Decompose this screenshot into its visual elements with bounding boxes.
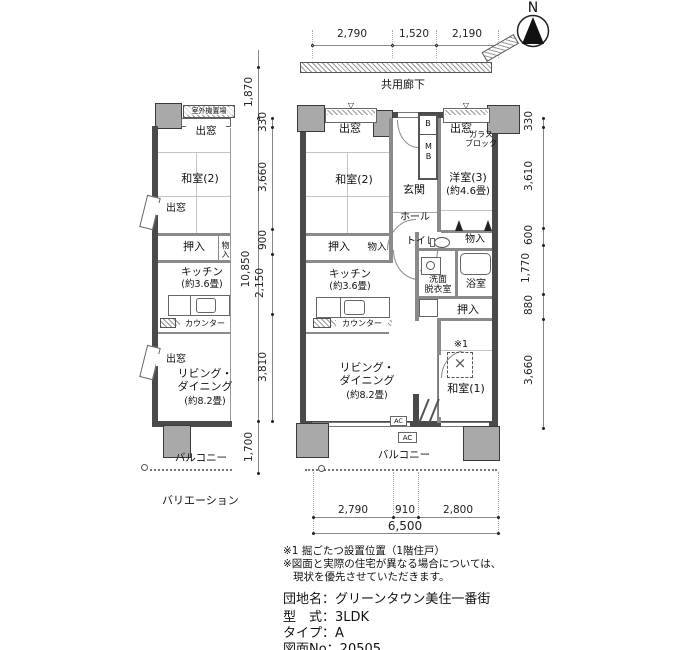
triangle-marker-icon: ▽	[345, 101, 357, 110]
dim-line-left-outer	[258, 421, 259, 474]
bathtub	[460, 253, 491, 275]
room-washroom: 洗面脱衣室	[420, 275, 456, 296]
corridor-band	[300, 62, 492, 73]
dim-tick	[257, 66, 260, 69]
dim-tick	[497, 516, 500, 519]
ac-unit-box: AC	[390, 416, 407, 426]
dim-tick	[542, 427, 545, 430]
room-bath: 浴室	[461, 279, 491, 291]
glass-block-line2: ブロック	[465, 139, 497, 148]
dim-tick	[312, 532, 315, 535]
entrance-opening	[398, 112, 418, 118]
dim-bottom-1: 2,790	[333, 504, 373, 516]
room-yoshitsu3-size: (約4.6畳)	[440, 186, 496, 198]
compass-icon	[515, 13, 551, 49]
balcony-label: バルコニー	[172, 452, 230, 464]
dim-tick	[271, 420, 274, 423]
dim-left-seg-1: 330	[257, 102, 269, 142]
outdoor-unit-label: 室外機置場	[184, 107, 234, 115]
washing-machine-box	[419, 299, 438, 317]
dim-left-seg-3: 900	[257, 220, 269, 260]
bay-window-hatch	[445, 110, 488, 115]
dim-top-3: 2,190	[447, 28, 487, 40]
dim-right-seg-6: 3,660	[523, 350, 535, 390]
variation-caption: バリエーション	[162, 495, 234, 508]
dim-left-lower: 1,700	[243, 427, 255, 467]
bottom-dim-line-2	[313, 533, 498, 534]
dim-tick	[271, 313, 274, 316]
dim-tick	[542, 293, 545, 296]
dim-right-seg-4: 1,770	[520, 248, 532, 288]
dim-line-right	[543, 118, 544, 429]
triangle-marker-icon: ▽	[460, 101, 472, 110]
dim-tick	[257, 420, 260, 423]
door-fold-marker-icon	[455, 220, 463, 231]
balcony-railing	[305, 466, 497, 471]
room-living: リビング・ダイニング	[174, 368, 236, 393]
tatami-line	[158, 152, 230, 153]
room-washitsu1: 和室(1)	[438, 383, 494, 396]
room-washitsu2: 和室(2)	[330, 174, 378, 187]
closet-left: 押入	[317, 241, 361, 254]
dim-right-seg-1: 330	[523, 101, 535, 141]
tatami-line	[158, 196, 230, 197]
info-drawing-no: 図面No：20505	[283, 638, 381, 650]
storage-label: 物入	[220, 238, 230, 262]
dim-tick	[271, 117, 274, 120]
kitchen-sink	[196, 298, 216, 313]
tatami-line	[196, 152, 197, 233]
storage-top-right: 物入	[458, 234, 492, 246]
living-line2: ダイニング	[340, 374, 395, 387]
closet-right: 押入	[446, 304, 490, 317]
washbasin-bowl	[426, 261, 435, 270]
dim-tick	[542, 318, 545, 321]
dim-top-1: 2,790	[332, 28, 372, 40]
pier	[463, 426, 500, 461]
kitchen-counter-divider	[190, 295, 191, 316]
glass-block-label: ガラスブロック	[464, 130, 498, 148]
bay-window-hatch	[327, 110, 375, 115]
kotatsu-cross-icon: ×	[450, 355, 470, 373]
pier	[297, 105, 325, 132]
dim-tick	[271, 253, 274, 256]
dim-bottom-total: 6,500	[385, 519, 425, 533]
dim-tick	[542, 244, 545, 247]
washroom-line2: 脱衣室	[424, 285, 451, 295]
living-line1: リビング・	[340, 361, 395, 374]
room-hall: ホール	[396, 212, 434, 224]
counter-hatch	[313, 318, 331, 328]
room-living: リビング・ダイニング	[336, 362, 398, 387]
storage-left: 物入	[362, 242, 392, 253]
dim-bottom-2: 910	[385, 504, 425, 516]
top-dim-line	[312, 45, 498, 46]
wall-interior	[158, 332, 230, 334]
counter-label: カウンター	[180, 319, 230, 328]
balcony-railing	[150, 466, 232, 471]
dim-tick	[257, 472, 260, 475]
toilet-bowl	[434, 237, 450, 248]
bay-window-label: 出窓	[330, 123, 370, 136]
living-line1: リビング・	[178, 367, 233, 380]
dim-tick	[542, 117, 545, 120]
ac-unit-box: AC	[398, 432, 417, 443]
dim-line-left-inner	[272, 118, 273, 421]
wall-interior	[306, 332, 389, 334]
wall-interior	[437, 318, 492, 321]
entrance-door-arc	[397, 120, 418, 148]
note-3: 現状を優先させていただきます。	[293, 569, 449, 584]
room-kitchen-size: (約3.6畳)	[177, 279, 227, 290]
room-living-size: (約8.2畳)	[338, 390, 396, 401]
closet-label: 押入	[172, 241, 216, 254]
drain-mark	[318, 465, 325, 472]
toilet-tank	[430, 238, 435, 247]
wall-interior	[306, 260, 393, 263]
pier	[296, 423, 329, 458]
dim-bottom-3: 2,800	[438, 504, 478, 516]
glass-block-line1: ガラス	[469, 130, 493, 139]
room-yoshitsu3: 洋室(3)	[442, 172, 494, 185]
dim-tick	[497, 532, 500, 535]
dim-left-seg-5: 3,810	[257, 347, 269, 387]
floor-plan-canvas: N 2,790 1,520 2,190 共用廊下 ▽ ▽	[0, 0, 700, 650]
kitchen-counter-divider	[340, 297, 341, 318]
dim-left-total: 10,850	[240, 249, 252, 289]
dim-guide	[392, 30, 393, 58]
wall-left	[300, 112, 306, 427]
wall-interior	[158, 233, 230, 236]
drain-mark	[141, 464, 148, 471]
kitchen-sink	[344, 300, 365, 315]
dim-guide	[313, 472, 314, 532]
counter-label: カウンター	[336, 319, 388, 328]
corridor-band-angled	[482, 34, 520, 62]
bay-window-label: 出窓	[186, 125, 226, 137]
dim-guide	[498, 472, 499, 532]
room-kitchen-size: (約3.6畳)	[325, 281, 375, 292]
balcony-label: バルコニー	[375, 449, 433, 461]
meter-box-label: MB	[423, 142, 433, 162]
room-kitchen: キッチン	[328, 268, 372, 280]
dim-right-seg-2: 3,610	[523, 156, 535, 196]
note-ref: ※1	[449, 339, 473, 350]
tatami-line	[347, 152, 348, 233]
dim-tick	[271, 228, 274, 231]
dim-left-seg-4: 2,150	[254, 263, 266, 303]
bottom-dim-line-1	[313, 517, 498, 518]
floor-line	[441, 210, 492, 211]
dim-guide	[312, 30, 313, 58]
closet-divider	[218, 236, 219, 260]
living-line2: ダイニング	[178, 380, 233, 393]
corridor-label: 共用廊下	[368, 79, 438, 92]
bay-window-label: 出窓	[156, 354, 196, 366]
room-entrance: 玄関	[396, 184, 432, 197]
washroom-line1: 洗面	[429, 275, 447, 285]
counter-hatch	[160, 318, 176, 328]
dim-tick	[312, 516, 315, 519]
dim-guide	[436, 30, 437, 58]
bay-window-label: 出窓	[156, 203, 196, 215]
door-fold-marker-icon	[484, 220, 492, 231]
box-b-label: B	[420, 119, 436, 128]
dim-tick	[542, 227, 545, 230]
dim-tick	[271, 126, 274, 129]
living-door-arc	[393, 250, 419, 280]
dim-top-2: 1,520	[394, 28, 434, 40]
dim-left-seg-2: 3,660	[257, 157, 269, 197]
info-danchi-name: 団地名：グリーンタウン美住一番街	[283, 588, 490, 607]
room-kitchen: キッチン	[180, 266, 224, 278]
room-washitsu2: 和室(2)	[176, 173, 224, 186]
wall-interior	[306, 233, 389, 236]
meter-box-divider	[420, 134, 436, 135]
dim-tick	[542, 126, 545, 129]
dim-right-seg-5: 880	[523, 285, 535, 325]
pier	[155, 103, 182, 129]
room-living-size: (約8.2畳)	[176, 396, 234, 407]
dim-left-upper: 1,870	[243, 72, 255, 112]
